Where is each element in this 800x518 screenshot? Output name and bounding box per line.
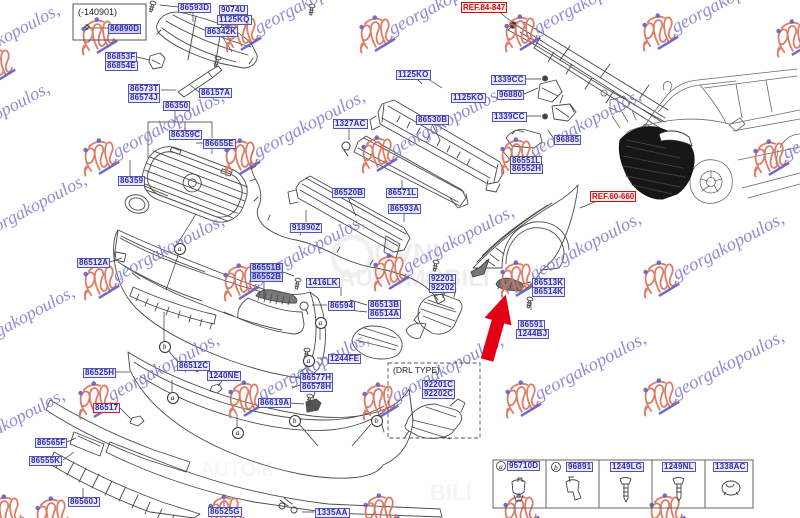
svg-text:georgakopoulos,: georgakopoulos,: [0, 170, 90, 244]
svg-text:georgakopoulos,: georgakopoulos,: [0, 78, 53, 152]
svg-text:(-140901): (-140901): [78, 7, 117, 17]
svg-text:georgakopoulos,: georgakopoulos,: [669, 326, 788, 402]
svg-text:georgakopoulos,: georgakopoulos,: [531, 328, 650, 404]
svg-text:georgakopoulos,: georgakopoulos,: [779, 87, 800, 163]
svg-text:b: b: [554, 463, 558, 472]
svg-text:georgakopoulos,: georgakopoulos,: [251, 0, 370, 38]
svg-text:georgakopoulos,: georgakopoulos,: [530, 0, 649, 38]
svg-text:georgakopoulos,: georgakopoulos,: [668, 0, 787, 37]
svg-text:(DRL TYPE): (DRL TYPE): [393, 365, 440, 375]
svg-text:a: a: [499, 462, 503, 471]
svg-text:BILI: BILI: [430, 480, 472, 505]
svg-text:georgakopoulos,: georgakopoulos,: [0, 282, 78, 356]
svg-text:georgakopoulos,: georgakopoulos,: [254, 328, 373, 404]
svg-text:georgakopoulos,: georgakopoulos,: [526, 208, 645, 284]
svg-text:georgakopoulos,: georgakopoulos,: [0, 0, 63, 74]
svg-text:georgakopoulos,: georgakopoulos,: [669, 208, 788, 284]
svg-text:AUTOM: AUTOM: [200, 459, 273, 481]
